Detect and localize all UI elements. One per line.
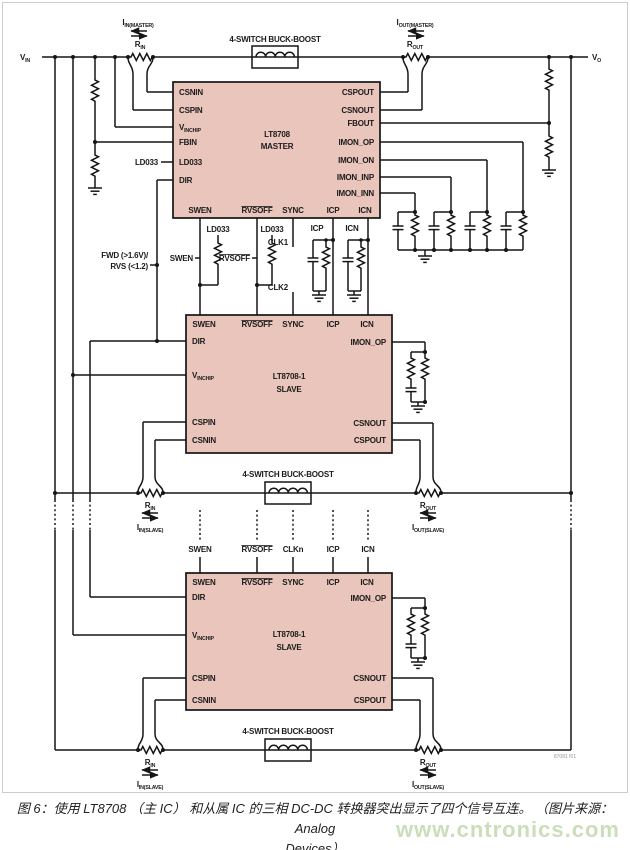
iout-slave1-label: IOUT(SLAVE)	[412, 523, 444, 534]
pin-label-imon-op: IMON_OP	[351, 594, 387, 603]
rout-slave2-resistor	[416, 747, 441, 754]
rout-slave2-label: ROUT	[420, 758, 437, 769]
rout-master-label: ROUT	[407, 40, 424, 51]
pin-label-rvsoff: RVSOFF	[241, 578, 272, 587]
pin-label-rvsoff: RVSOFF	[241, 320, 272, 329]
capacitor	[343, 258, 354, 262]
slave2-chip: LT8708-1 SLAVE SWEN RVSOFF SYNC ICP ICN …	[186, 573, 392, 710]
chip-role: MASTER	[261, 142, 294, 151]
bus-label-icp: ICP	[327, 545, 341, 554]
pin-label-sync: SYNC	[282, 320, 304, 329]
pin-label-imon-op: IMON_OP	[339, 138, 375, 147]
ld033-external-label: LD033	[135, 158, 159, 167]
slave1-chip-body	[186, 315, 392, 453]
pin-label-dir: DIR	[192, 593, 206, 602]
fwd-rvs-label: FWD (>1.6V)/ RVS (<1.2)	[101, 251, 159, 271]
pin-label-csnout: CSNOUT	[353, 674, 386, 683]
slave1-rail: 4-SWITCH BUCK-BOOST RIN IIN(SLAVE) ROUT …	[53, 470, 573, 534]
master-input-sense-labels: IIN(MASTER) RIN	[122, 18, 154, 51]
pin-label-cspout: CSPOUT	[354, 436, 386, 445]
schematic: VIN VO 4-SWITCH BUCK-BOOST IIN(MASTER) R…	[0, 0, 630, 796]
net-label-clk2: CLK2	[268, 283, 289, 292]
net-label-clk1: CLK1	[268, 238, 289, 247]
iin-master-label: IIN(MASTER)	[122, 18, 154, 29]
iout-master-label: IOUT(MASTER)	[397, 18, 434, 29]
capacitor	[429, 226, 440, 230]
resistor	[546, 133, 553, 161]
pin-label-cspin: CSPIN	[192, 674, 216, 683]
resistor	[484, 212, 491, 240]
pin-label-imon-inn: IMON_INN	[336, 189, 374, 198]
rvs-threshold-label: RVS (<1.2)	[110, 262, 148, 271]
slave1-left-wiring	[71, 339, 186, 492]
rout-master-resistor	[403, 54, 428, 61]
pin-label-csnin: CSNIN	[192, 696, 216, 705]
figure-page: VIN VO 4-SWITCH BUCK-BOOST IIN(MASTER) R…	[0, 0, 630, 850]
slave2-left-wiring	[73, 597, 186, 749]
slave2-rail: 4-SWITCH BUCK-BOOST RIN IIN(SLAVE) ROUT …	[55, 727, 576, 791]
pin-label-swen: SWEN	[192, 320, 216, 329]
pin-label-icn: ICN	[358, 206, 372, 215]
rout-slave1-label: ROUT	[420, 501, 437, 512]
pin-label-sync: SYNC	[282, 206, 304, 215]
net-label-ld033: LD033	[260, 225, 284, 234]
capacitor	[406, 388, 417, 392]
resistor	[323, 244, 330, 272]
resistor	[422, 611, 429, 639]
pin-label-icn: ICN	[360, 578, 374, 587]
capacitor	[308, 258, 319, 262]
imon-filter-networks	[380, 142, 527, 262]
ground-symbol	[411, 406, 425, 412]
bus-label-clkn: CLKn	[283, 545, 304, 554]
chip-name: LT8708-1	[273, 372, 306, 381]
net-label-rvsoff: RVSOFF	[219, 254, 250, 263]
resistor	[422, 355, 429, 383]
pin-label-icp: ICP	[327, 206, 341, 215]
buck-boost-label-slave2: 4-SWITCH BUCK-BOOST	[242, 727, 334, 736]
pin-label-imon-on: IMON_ON	[338, 156, 374, 165]
resistor	[408, 355, 415, 383]
resistor	[358, 244, 365, 272]
ground-symbol	[312, 295, 326, 301]
pin-label-ld033: LD033	[179, 158, 203, 167]
fwd-threshold-label: FWD (>1.6V)/	[101, 251, 149, 260]
slave1-output-wiring	[392, 423, 441, 492]
net-label-icp: ICP	[311, 224, 325, 233]
rin-master-resistor	[128, 54, 153, 61]
pin-label-swen: SWEN	[192, 578, 216, 587]
buck-boost-label-slave1: 4-SWITCH BUCK-BOOST	[242, 470, 334, 479]
pin-label-csnout: CSNOUT	[353, 419, 386, 428]
capacitor	[406, 644, 417, 648]
bus-label-icn: ICN	[361, 545, 375, 554]
resistor	[412, 212, 419, 240]
vo-label: VO	[592, 53, 601, 64]
slave1-chip: LT8708-1 SLAVE SWEN RVSOFF SYNC ICP ICN …	[186, 315, 392, 453]
pin-label-imon-op: IMON_OP	[351, 338, 387, 347]
resistor	[520, 212, 527, 240]
pin-label-swen: SWEN	[188, 206, 212, 215]
rin-slave1-resistor	[138, 490, 163, 497]
pin-label-dir: DIR	[179, 176, 193, 185]
resistor	[448, 212, 455, 240]
net-label-swen: SWEN	[170, 254, 194, 263]
slave1-imon-filter	[392, 342, 429, 412]
pin-label-icp: ICP	[327, 320, 341, 329]
buck-boost-label-master: 4-SWITCH BUCK-BOOST	[229, 35, 321, 44]
net-label-icn: ICN	[345, 224, 359, 233]
bus-label-swen: SWEN	[188, 545, 212, 554]
slave2-imon-filter	[392, 598, 429, 668]
master-output-wiring	[380, 58, 551, 125]
chip-role: SLAVE	[276, 385, 302, 394]
iin-slave2-label: IIN(SLAVE)	[137, 780, 164, 791]
left-distribution-rails	[55, 57, 90, 750]
slave2-bus-stubs: SWEN RVSOFF CLKn ICP ICN	[188, 510, 375, 573]
pin-label-csnin: CSNIN	[179, 88, 203, 97]
rin-slave2-label: RIN	[145, 758, 156, 769]
rout-slave1-resistor	[416, 490, 441, 497]
slave2-output-wiring	[392, 678, 441, 749]
rin-slave1-label: RIN	[145, 501, 156, 512]
resistor	[546, 66, 553, 94]
pin-label-rvsoff: RVSOFF	[241, 206, 272, 215]
resistor	[408, 611, 415, 639]
vin-vo-rail: VIN VO 4-SWITCH BUCK-BOOST	[20, 35, 601, 68]
ground-symbol	[88, 188, 102, 194]
resistor	[92, 152, 99, 180]
pin-label-dir: DIR	[192, 337, 206, 346]
pin-label-cspout: CSPOUT	[354, 696, 386, 705]
pin-label-icn: ICN	[360, 320, 374, 329]
pin-label-fbin: FBIN	[179, 138, 197, 147]
ground-symbol	[411, 662, 425, 668]
vin-label: VIN	[20, 53, 30, 64]
iout-slave2-label: IOUT(SLAVE)	[412, 780, 444, 791]
pin-label-icp: ICP	[327, 578, 341, 587]
net-label-ld033: LD033	[206, 225, 230, 234]
chip-name: LT8708	[264, 130, 291, 139]
pin-label-csnin: CSNIN	[192, 436, 216, 445]
iin-slave1-label: IIN(SLAVE)	[137, 523, 164, 534]
ground-symbol	[542, 170, 556, 176]
vin-feedback-divider	[88, 57, 173, 194]
pin-label-cspin: CSPIN	[192, 418, 216, 427]
pin-label-cspout: CSPOUT	[342, 88, 374, 97]
pin-label-csnout: CSNOUT	[341, 106, 374, 115]
master-chip: LT8708 MASTER CSNIN CSPIN VINCHIP FBIN L…	[173, 82, 380, 218]
chip-name: LT8708-1	[273, 630, 306, 639]
pin-label-fbout: FBOUT	[347, 119, 374, 128]
pin-label-imon-inp: IMON_INP	[337, 173, 375, 182]
interconnect-buses: SWEN LD033 RVSOFF LD033 CLK1 CLK2 ICP IC…	[170, 218, 370, 315]
master-input-wiring: LD033	[115, 57, 173, 341]
bus-label-rvsoff: RVSOFF	[241, 545, 272, 554]
capacitor	[501, 226, 512, 230]
ground-symbol	[418, 256, 432, 262]
capacitor	[393, 226, 404, 230]
capacitor	[465, 226, 476, 230]
pin-label-sync: SYNC	[282, 578, 304, 587]
ground-symbol	[347, 295, 361, 301]
master-output-sense-labels: IOUT(MASTER) ROUT	[397, 18, 434, 51]
vout-feedback-divider	[542, 57, 556, 176]
pin-label-cspin: CSPIN	[179, 106, 203, 115]
figure-reference: 87081 f01	[554, 754, 576, 760]
resistor	[92, 77, 99, 105]
chip-role: SLAVE	[276, 643, 302, 652]
rin-slave2-resistor	[138, 747, 163, 754]
watermark: www.cntronics.com	[396, 817, 620, 843]
rin-master-label: RIN	[135, 40, 146, 51]
